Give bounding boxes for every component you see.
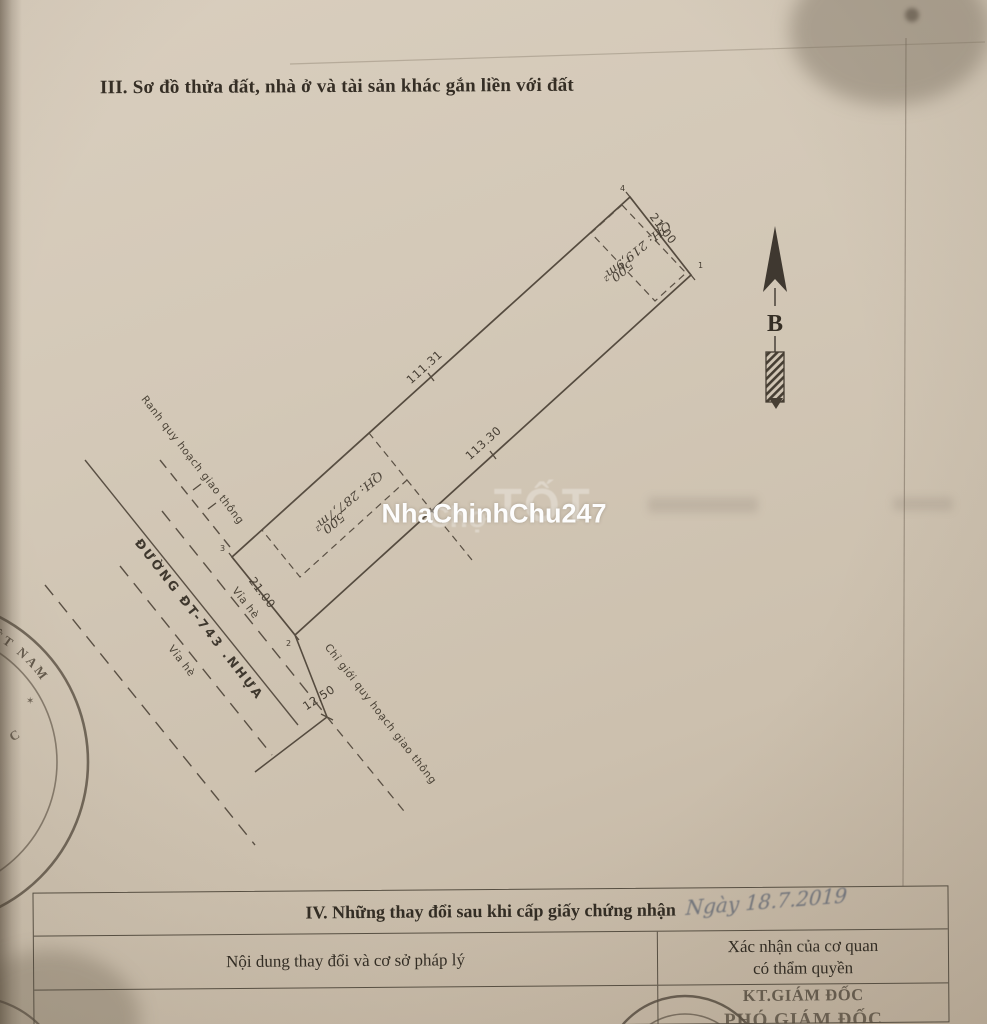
signature-title: KT.GIÁM ĐỐC bbox=[743, 985, 864, 1007]
signature-partial: PHÓ GIÁM ĐỐC bbox=[724, 1008, 883, 1024]
dim-tail-length: 12.50 bbox=[300, 682, 337, 713]
brand-watermark: NhaChinhChu247 bbox=[381, 499, 606, 530]
corner-point-3: 3 bbox=[220, 544, 225, 553]
dim-right-length: 113.30 bbox=[463, 423, 505, 462]
section4-body-row: KT.GIÁM ĐỐC PHÓ GIÁM ĐỐC bbox=[34, 983, 948, 1024]
certificate-page-photo: 4 1 3 2 21.00 111.31 113.30 21.00 12.50 … bbox=[0, 0, 987, 1024]
confirm-cell: KT.GIÁM ĐỐC PHÓ GIÁM ĐỐC bbox=[658, 983, 948, 1024]
page-top-edge bbox=[290, 42, 985, 64]
north-label: B bbox=[767, 311, 783, 337]
col-content-header: Nội dung thay đổi và cơ sở pháp lý bbox=[34, 932, 658, 990]
north-arrow: B bbox=[763, 226, 787, 409]
corner-point-4: 4 bbox=[620, 184, 625, 193]
section4-title: IV. Những thay đổi sau khi cấp giấy chứn… bbox=[305, 899, 676, 923]
corner-point-1: 1 bbox=[698, 261, 703, 270]
sidewalk-label-2: Vỉa hè bbox=[165, 643, 197, 679]
planning-boundary-label: Ranh quy hoạch giao thông bbox=[139, 394, 247, 527]
north-arrow-tail bbox=[766, 352, 784, 402]
stamp-star: ✶ bbox=[26, 696, 34, 707]
planning-line-label: Chỉ giới quy hoạch giao thông bbox=[322, 642, 439, 787]
section3-title: III. Sơ đồ thửa đất, nhà ở và tài sản kh… bbox=[100, 75, 574, 99]
content-cell-empty bbox=[34, 986, 658, 1024]
stamp-letter: C bbox=[7, 726, 23, 744]
col-confirm-line1: Xác nhận của cơ quan bbox=[728, 935, 879, 957]
section4-title-row: IV. Những thay đổi sau khi cấp giấy chứn… bbox=[33, 886, 947, 936]
section4-table: IV. Những thay đổi sau khi cấp giấy chứn… bbox=[32, 885, 949, 1024]
section4-header-row: Nội dung thay đổi và cơ sở pháp lý Xác n… bbox=[34, 929, 948, 990]
corner-point-2: 2 bbox=[286, 639, 291, 648]
col-confirm-line2: có thẩm quyền bbox=[753, 957, 853, 979]
north-arrow-head bbox=[763, 226, 787, 292]
dim-left-length: 111.31 bbox=[404, 347, 446, 386]
road-name-label: ĐƯỜNG ĐT-743 .NHỰA bbox=[132, 536, 267, 703]
col-confirm-header: Xác nhận của cơ quan có thẩm quyền bbox=[658, 929, 948, 984]
handwritten-date: Ngày 18.7.2019 bbox=[685, 883, 848, 920]
tail-end-edge bbox=[255, 717, 327, 772]
page-fold-line bbox=[903, 38, 906, 886]
